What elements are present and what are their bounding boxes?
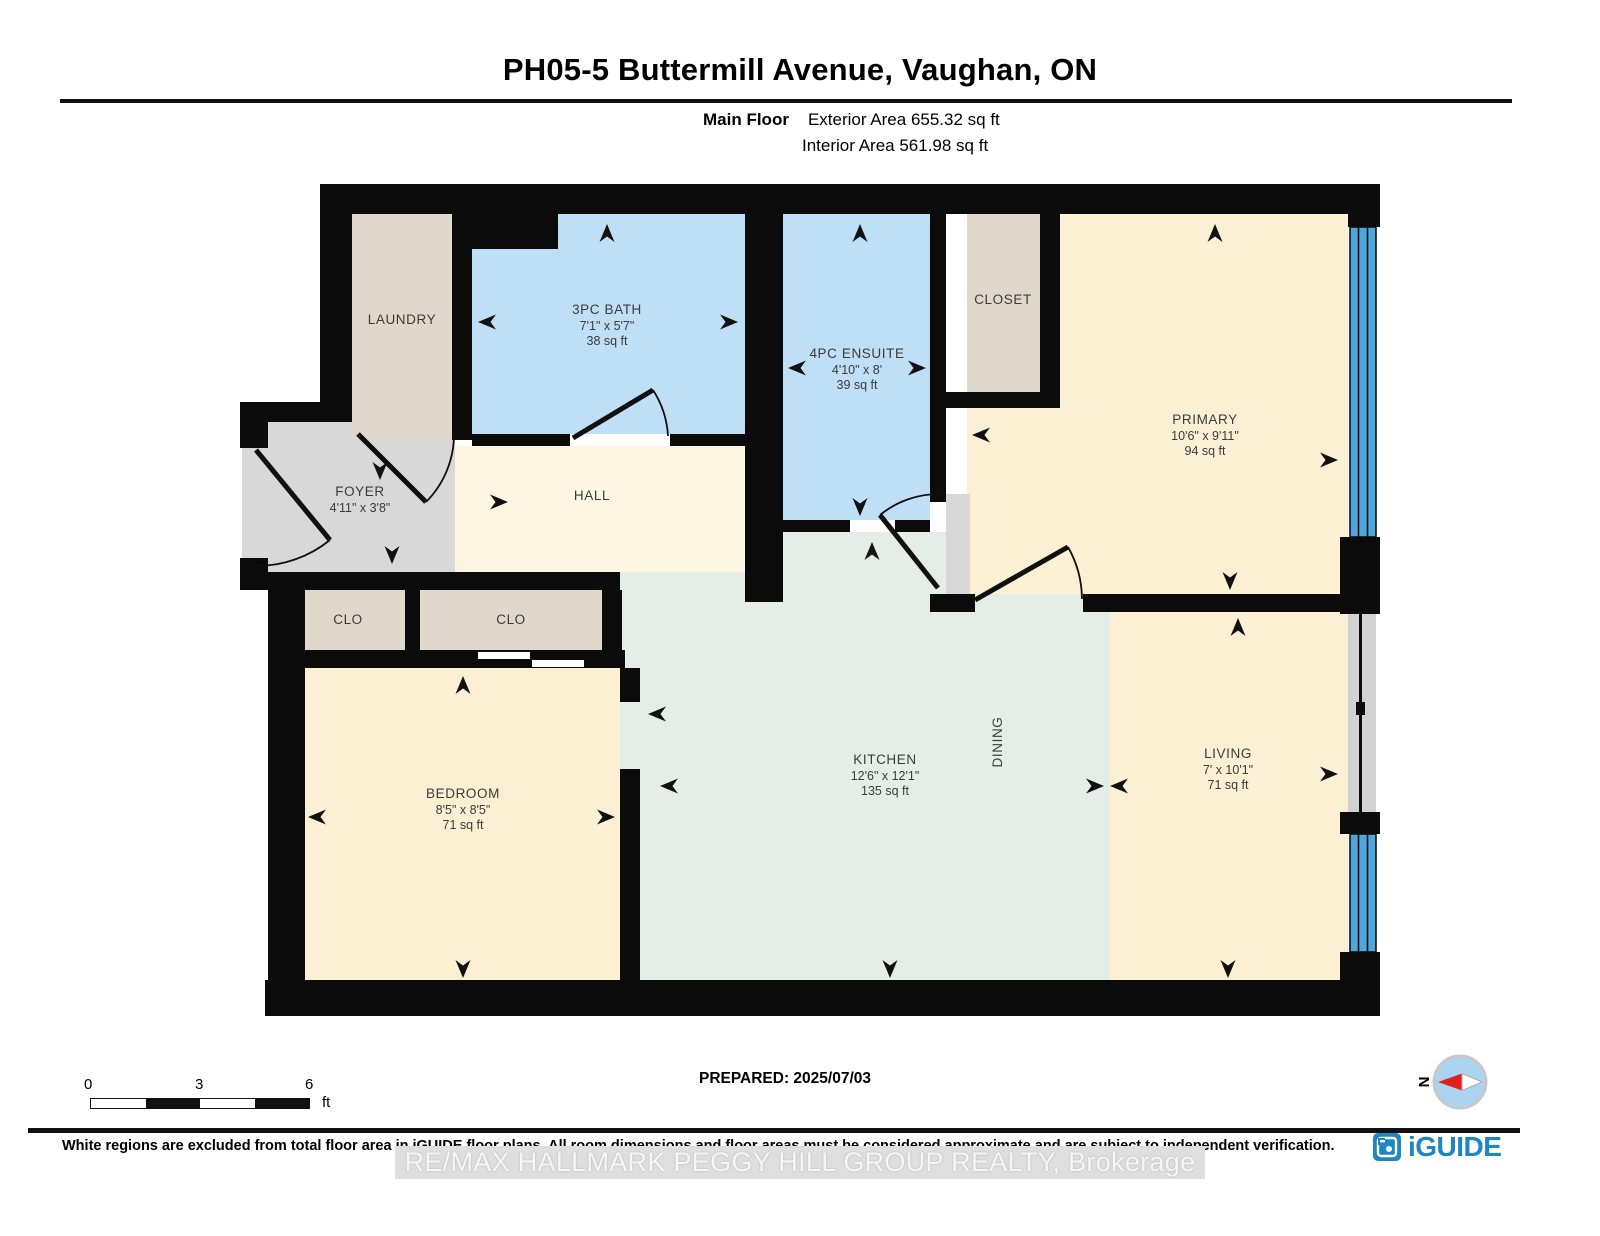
hall-label: HALL — [574, 488, 610, 503]
primary-area: 94 sq ft — [1185, 444, 1227, 458]
primary-dims: 10'6" x 9'11" — [1171, 429, 1239, 443]
window-living — [1350, 834, 1376, 952]
living-floor — [1110, 612, 1348, 987]
bedroom-area: 71 sq ft — [443, 818, 485, 832]
balcony-door-handle — [1356, 702, 1365, 715]
exterior-area: Exterior Area 655.32 sq ft — [808, 110, 1000, 129]
clo-left-label: CLO — [333, 612, 363, 627]
dining-label: DINING — [990, 717, 1005, 768]
bedroom-label: BEDROOM — [426, 786, 500, 801]
scale-tick-0: 0 — [84, 1076, 92, 1093]
floor-plan: LAUNDRY 3PC BATH 7'1" x 5'7" 38 sq ft 4P… — [230, 172, 1390, 1020]
kitchen-area: 135 sq ft — [861, 784, 909, 798]
floor-label: Main Floor — [703, 110, 789, 129]
iguide-logo-text: iGUIDE — [1408, 1131, 1501, 1163]
brokerage-watermark: RE/MAX HALLMARK PEGGY HILL GROUP REALTY,… — [0, 1146, 1600, 1179]
compass: N — [1398, 1047, 1498, 1117]
bath-label: 3PC BATH — [572, 302, 642, 317]
iguide-logo: iGUIDE — [1372, 1131, 1501, 1163]
kitchen-dims: 12'6" x 12'1" — [851, 769, 920, 783]
prepared-date: PREPARED: 2025/07/03 — [635, 1070, 935, 1088]
title-divider — [60, 99, 1512, 103]
window-primary — [1350, 227, 1376, 537]
ensuite-dims: 4'10" x 8' — [832, 363, 882, 377]
compass-north-label: N — [1416, 1077, 1433, 1088]
clo-right-label: CLO — [496, 612, 526, 627]
ensuite-area: 39 sq ft — [837, 378, 879, 392]
scale-tick-3: 3 — [195, 1076, 203, 1093]
hall-floor — [455, 446, 745, 572]
closet-label: CLOSET — [974, 292, 1032, 307]
living-dims: 7' x 10'1" — [1203, 763, 1253, 777]
laundry-label: LAUNDRY — [368, 312, 436, 327]
scale-bar — [90, 1098, 310, 1109]
living-area: 71 sq ft — [1208, 778, 1250, 792]
bath-dims: 7'1" x 5'7" — [580, 319, 635, 333]
primary-vestibule-floor — [946, 494, 970, 594]
foyer-label: FOYER — [335, 484, 385, 499]
scale-tick-6: 6 — [305, 1076, 313, 1093]
page-title: PH05-5 Buttermill Avenue, Vaughan, ON — [0, 52, 1600, 88]
laundry-floor — [352, 214, 452, 440]
floor-summary: Main FloorExterior Area 655.32 sq ft — [703, 110, 1000, 130]
ensuite-label: 4PC ENSUITE — [809, 346, 904, 361]
scale-unit: ft — [322, 1094, 330, 1111]
kitchen-label: KITCHEN — [853, 752, 916, 767]
footer-divider — [28, 1128, 1520, 1133]
bedroom-dims: 8'5" x 8'5" — [436, 803, 491, 817]
primary-label: PRIMARY — [1172, 412, 1237, 427]
living-label: LIVING — [1204, 746, 1252, 761]
brokerage-watermark-text: RE/MAX HALLMARK PEGGY HILL GROUP REALTY,… — [395, 1146, 1206, 1179]
bath-area: 38 sq ft — [587, 334, 629, 348]
iguide-logo-icon — [1372, 1132, 1402, 1162]
interior-area: Interior Area 561.98 sq ft — [802, 136, 988, 156]
foyer-dims: 4'11" x 3'8" — [330, 501, 391, 515]
